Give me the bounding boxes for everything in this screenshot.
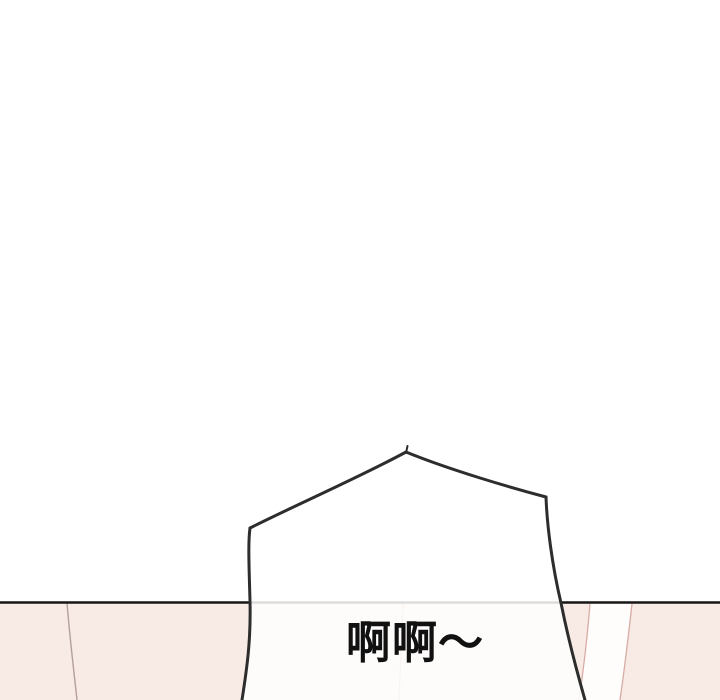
panel-artwork [0, 0, 720, 700]
speech-text: 啊啊～ [330, 617, 500, 669]
comic-page: 啊啊～ [0, 0, 720, 700]
